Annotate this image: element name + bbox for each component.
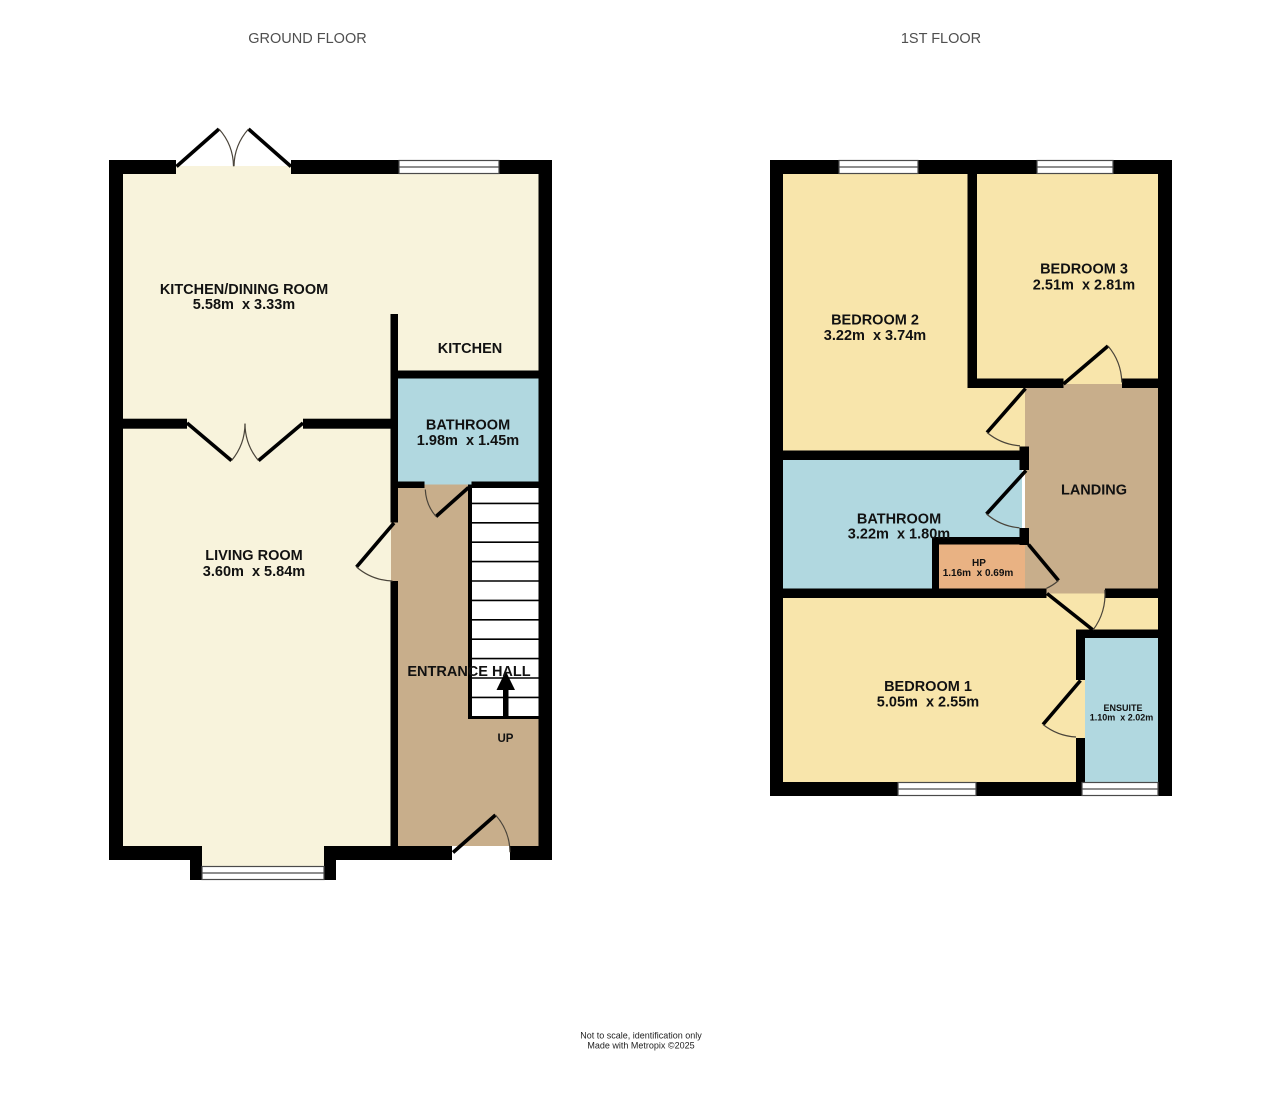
svg-text:5.05m x 2.55m: 5.05m x 2.55m [877, 695, 979, 711]
svg-text:GROUND FLOOR: GROUND FLOOR [248, 31, 366, 47]
svg-text:3.22m x 3.74m: 3.22m x 3.74m [824, 328, 926, 344]
svg-text:BEDROOM 1: BEDROOM 1 [884, 679, 972, 695]
svg-text:LIVING ROOM: LIVING ROOM [205, 548, 302, 564]
svg-text:LANDING: LANDING [1061, 483, 1127, 499]
svg-text:1.98m x 1.45m: 1.98m x 1.45m [417, 433, 519, 449]
svg-text:3.22m x 1.80m: 3.22m x 1.80m [848, 527, 950, 543]
svg-text:1.16m x 0.69m: 1.16m x 0.69m [943, 568, 1014, 579]
svg-text:1.10m x 2.02m: 1.10m x 2.02m [1090, 713, 1154, 723]
svg-text:BEDROOM 3: BEDROOM 3 [1040, 262, 1128, 278]
svg-text:BEDROOM 2: BEDROOM 2 [831, 313, 919, 329]
svg-text:3.60m x 5.84m: 3.60m x 5.84m [203, 564, 305, 580]
svg-text:Made with Metropix ©2025: Made with Metropix ©2025 [587, 1041, 694, 1051]
svg-text:ENSUITE: ENSUITE [1103, 703, 1142, 713]
svg-text:1ST FLOOR: 1ST FLOOR [901, 31, 981, 47]
svg-text:5.58m x 3.33m: 5.58m x 3.33m [193, 297, 295, 313]
svg-text:2.51m x 2.81m: 2.51m x 2.81m [1033, 278, 1135, 294]
svg-text:BATHROOM: BATHROOM [857, 512, 941, 528]
svg-text:KITCHEN: KITCHEN [438, 341, 502, 357]
svg-text:ENTRANCE HALL: ENTRANCE HALL [407, 664, 530, 680]
svg-text:BATHROOM: BATHROOM [426, 418, 510, 434]
svg-text:KITCHEN/DINING ROOM: KITCHEN/DINING ROOM [160, 282, 328, 298]
svg-text:UP: UP [498, 733, 514, 745]
svg-text:Not to scale, identification o: Not to scale, identification only [580, 1031, 702, 1041]
